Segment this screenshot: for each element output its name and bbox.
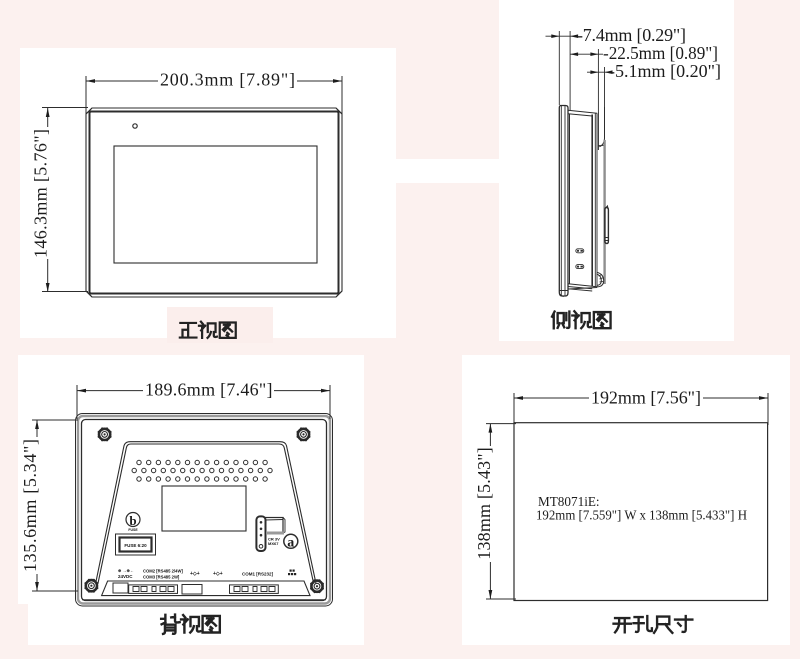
svg-text:COM1 [RS232]: COM1 [RS232] [242, 572, 274, 577]
svg-text:+◇+: +◇+ [213, 571, 223, 577]
svg-text:200.3mm [7.89"]: 200.3mm [7.89"] [160, 70, 295, 90]
svg-text:146.3mm [5.76"]: 146.3mm [5.76"] [31, 129, 51, 258]
svg-text:COM3 [RS485 2W]: COM3 [RS485 2W] [143, 575, 180, 580]
svg-text:138mm [5.43"]: 138mm [5.43"] [474, 447, 494, 560]
svg-text:192mm [7.559"] W x 138mm [5.43: 192mm [7.559"] W x 138mm [5.433"] H [536, 509, 747, 524]
svg-text:a: a [287, 536, 294, 551]
svg-text:⊕ →⊕←: ⊕ →⊕← [118, 568, 134, 573]
svg-text:COM2 [RS485 2/4W]: COM2 [RS485 2/4W] [143, 569, 183, 574]
svg-text:135.6mm [5.34"]: 135.6mm [5.34"] [20, 439, 40, 572]
svg-text:FUSE 6:20: FUSE 6:20 [124, 543, 147, 548]
svg-text:FUSE: FUSE [128, 528, 138, 532]
svg-text:24VDC: 24VDC [118, 574, 133, 579]
svg-text:192mm [7.56"]: 192mm [7.56"] [591, 388, 701, 408]
svg-text:b: b [129, 513, 136, 528]
svg-text:MX67: MX67 [268, 541, 279, 546]
svg-text:189.6mm [7.46"]: 189.6mm [7.46"] [145, 380, 273, 400]
svg-text:-7.4mm [0.29"]: -7.4mm [0.29"] [577, 25, 686, 45]
svg-text:+◇+: +◇+ [190, 571, 200, 577]
svg-text:-22.5mm [0.89"]: -22.5mm [0.89"] [603, 43, 718, 63]
svg-text:-5.1mm [0.20"]: -5.1mm [0.20"] [609, 61, 721, 81]
